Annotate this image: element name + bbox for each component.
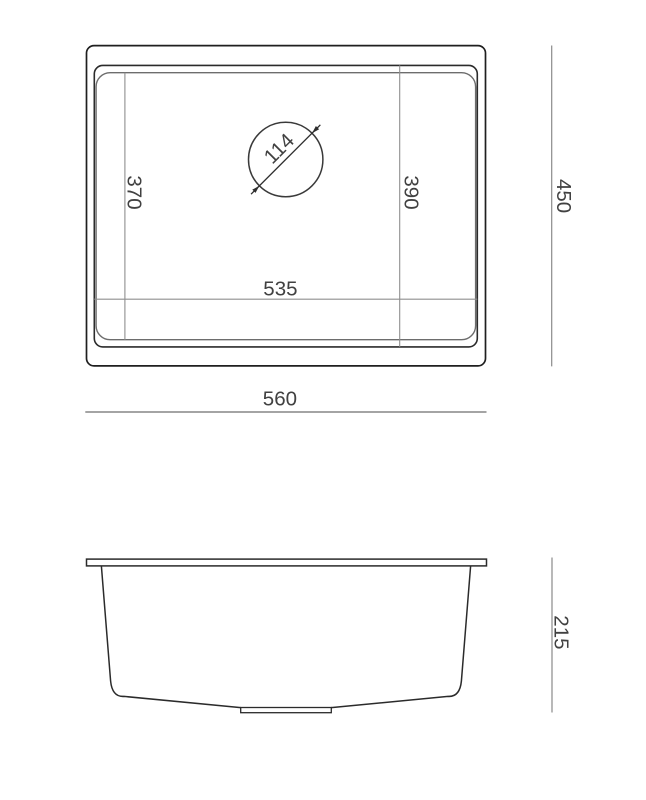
- svg-text:535: 535: [263, 278, 297, 301]
- svg-text:560: 560: [263, 388, 297, 411]
- svg-text:390: 390: [399, 175, 422, 209]
- svg-text:215: 215: [550, 615, 573, 649]
- svg-text:450: 450: [552, 179, 575, 213]
- svg-text:370: 370: [123, 175, 146, 209]
